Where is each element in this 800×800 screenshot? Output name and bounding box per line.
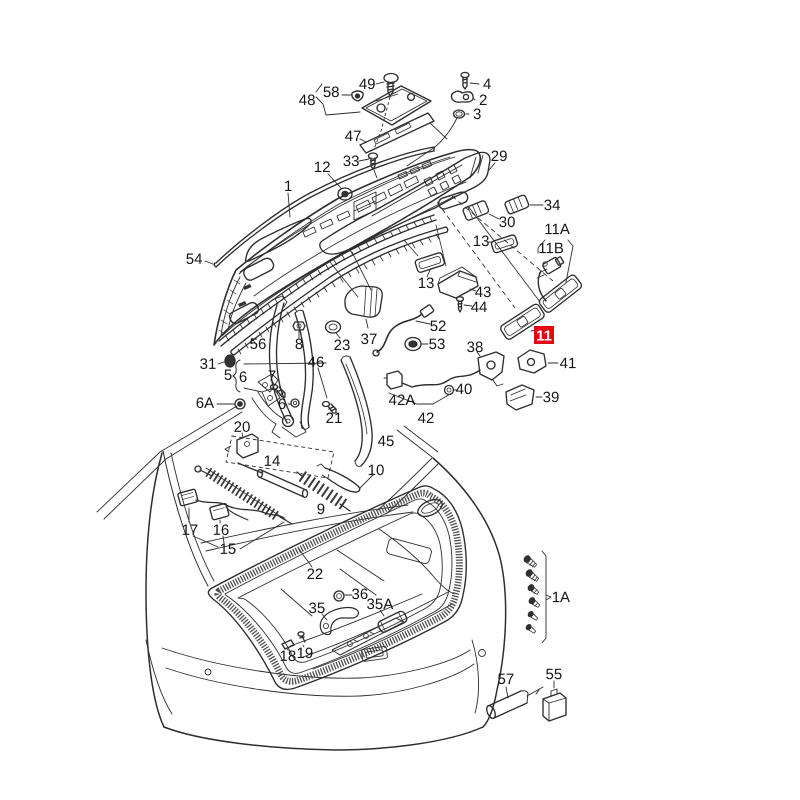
svg-text:13: 13 [418, 275, 435, 292]
svg-text:1A: 1A [552, 589, 570, 606]
svg-text:20: 20 [234, 419, 251, 436]
svg-text:4: 4 [483, 76, 491, 93]
svg-text:12: 12 [314, 159, 331, 176]
svg-text:42A: 42A [389, 392, 416, 409]
svg-text:38: 38 [467, 339, 484, 356]
svg-text:23: 23 [334, 337, 351, 354]
svg-text:16: 16 [213, 522, 230, 539]
svg-text:30: 30 [499, 214, 516, 231]
svg-text:37: 37 [361, 331, 378, 348]
svg-text:40: 40 [456, 381, 473, 398]
svg-text:10: 10 [368, 462, 385, 479]
svg-text:14: 14 [264, 453, 281, 470]
svg-text:41: 41 [560, 355, 577, 372]
svg-text:39: 39 [543, 389, 560, 406]
svg-text:13: 13 [473, 233, 490, 250]
svg-text:1: 1 [284, 178, 292, 195]
svg-text:6A: 6A [196, 395, 214, 412]
svg-text:5: 5 [224, 367, 232, 384]
svg-text:17: 17 [182, 522, 199, 539]
svg-text:53: 53 [429, 336, 446, 353]
svg-text:11B: 11B [538, 240, 564, 257]
svg-text:22: 22 [307, 566, 324, 583]
svg-text:19: 19 [297, 645, 314, 662]
svg-text:29: 29 [491, 148, 508, 165]
svg-text:48: 48 [299, 92, 316, 109]
svg-text:33: 33 [343, 153, 360, 170]
svg-text:3: 3 [473, 106, 481, 123]
svg-text:7: 7 [268, 368, 276, 385]
svg-text:6: 6 [278, 396, 286, 413]
svg-text:58: 58 [323, 84, 340, 101]
svg-text:35: 35 [309, 600, 326, 617]
svg-text:8: 8 [295, 336, 303, 353]
svg-text:11A: 11A [544, 221, 570, 238]
svg-text:31: 31 [200, 356, 217, 373]
svg-text:15: 15 [220, 541, 237, 558]
svg-text:47: 47 [345, 128, 362, 145]
svg-text:9: 9 [317, 501, 325, 518]
svg-text:6: 6 [239, 369, 247, 386]
svg-text:44: 44 [471, 299, 488, 316]
svg-text:57: 57 [498, 671, 515, 688]
svg-text:21: 21 [326, 410, 343, 427]
svg-text:54: 54 [186, 251, 203, 268]
svg-text:35A: 35A [367, 596, 394, 613]
svg-text:11: 11 [536, 328, 552, 345]
svg-text:34: 34 [544, 197, 561, 214]
svg-text:52: 52 [430, 318, 447, 335]
svg-text:42: 42 [418, 410, 435, 427]
svg-text:45: 45 [378, 433, 395, 450]
svg-text:18: 18 [280, 648, 297, 665]
svg-text:46: 46 [308, 354, 325, 371]
svg-text:55: 55 [546, 666, 563, 683]
svg-text:49: 49 [359, 76, 376, 93]
svg-text:56: 56 [250, 336, 267, 353]
